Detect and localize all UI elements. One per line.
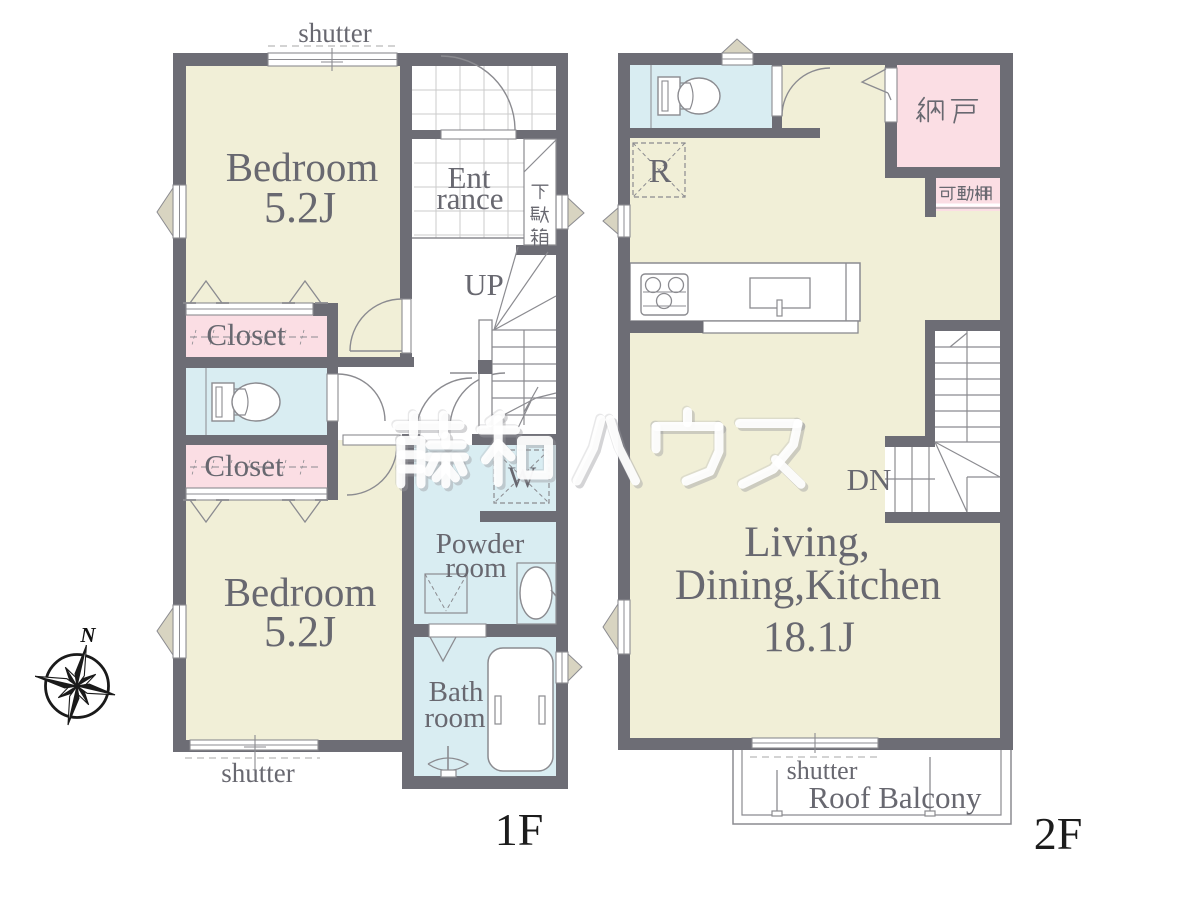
svg-text:DN: DN — [847, 462, 892, 497]
svg-text:1F: 1F — [495, 804, 544, 855]
svg-text:5.2J: 5.2J — [264, 183, 336, 232]
svg-text:5.2J: 5.2J — [264, 607, 336, 656]
svg-text:Dining,Kitchen: Dining,Kitchen — [675, 562, 941, 609]
svg-text:2F: 2F — [1034, 808, 1083, 859]
svg-text:Closet: Closet — [204, 448, 284, 483]
svg-text:room: room — [424, 702, 486, 734]
svg-text:shutter: shutter — [298, 18, 372, 48]
svg-text:rance: rance — [436, 181, 503, 216]
svg-text:R: R — [649, 153, 672, 190]
svg-text:Roof Balcony: Roof Balcony — [808, 780, 982, 815]
svg-text:shutter: shutter — [221, 758, 295, 788]
svg-text:room: room — [445, 552, 507, 584]
svg-text:Living,: Living, — [744, 519, 869, 566]
svg-text:Closet: Closet — [206, 317, 286, 352]
svg-text:18.1J: 18.1J — [763, 614, 855, 661]
svg-text:UP: UP — [464, 267, 504, 302]
svg-text:N: N — [79, 623, 96, 647]
